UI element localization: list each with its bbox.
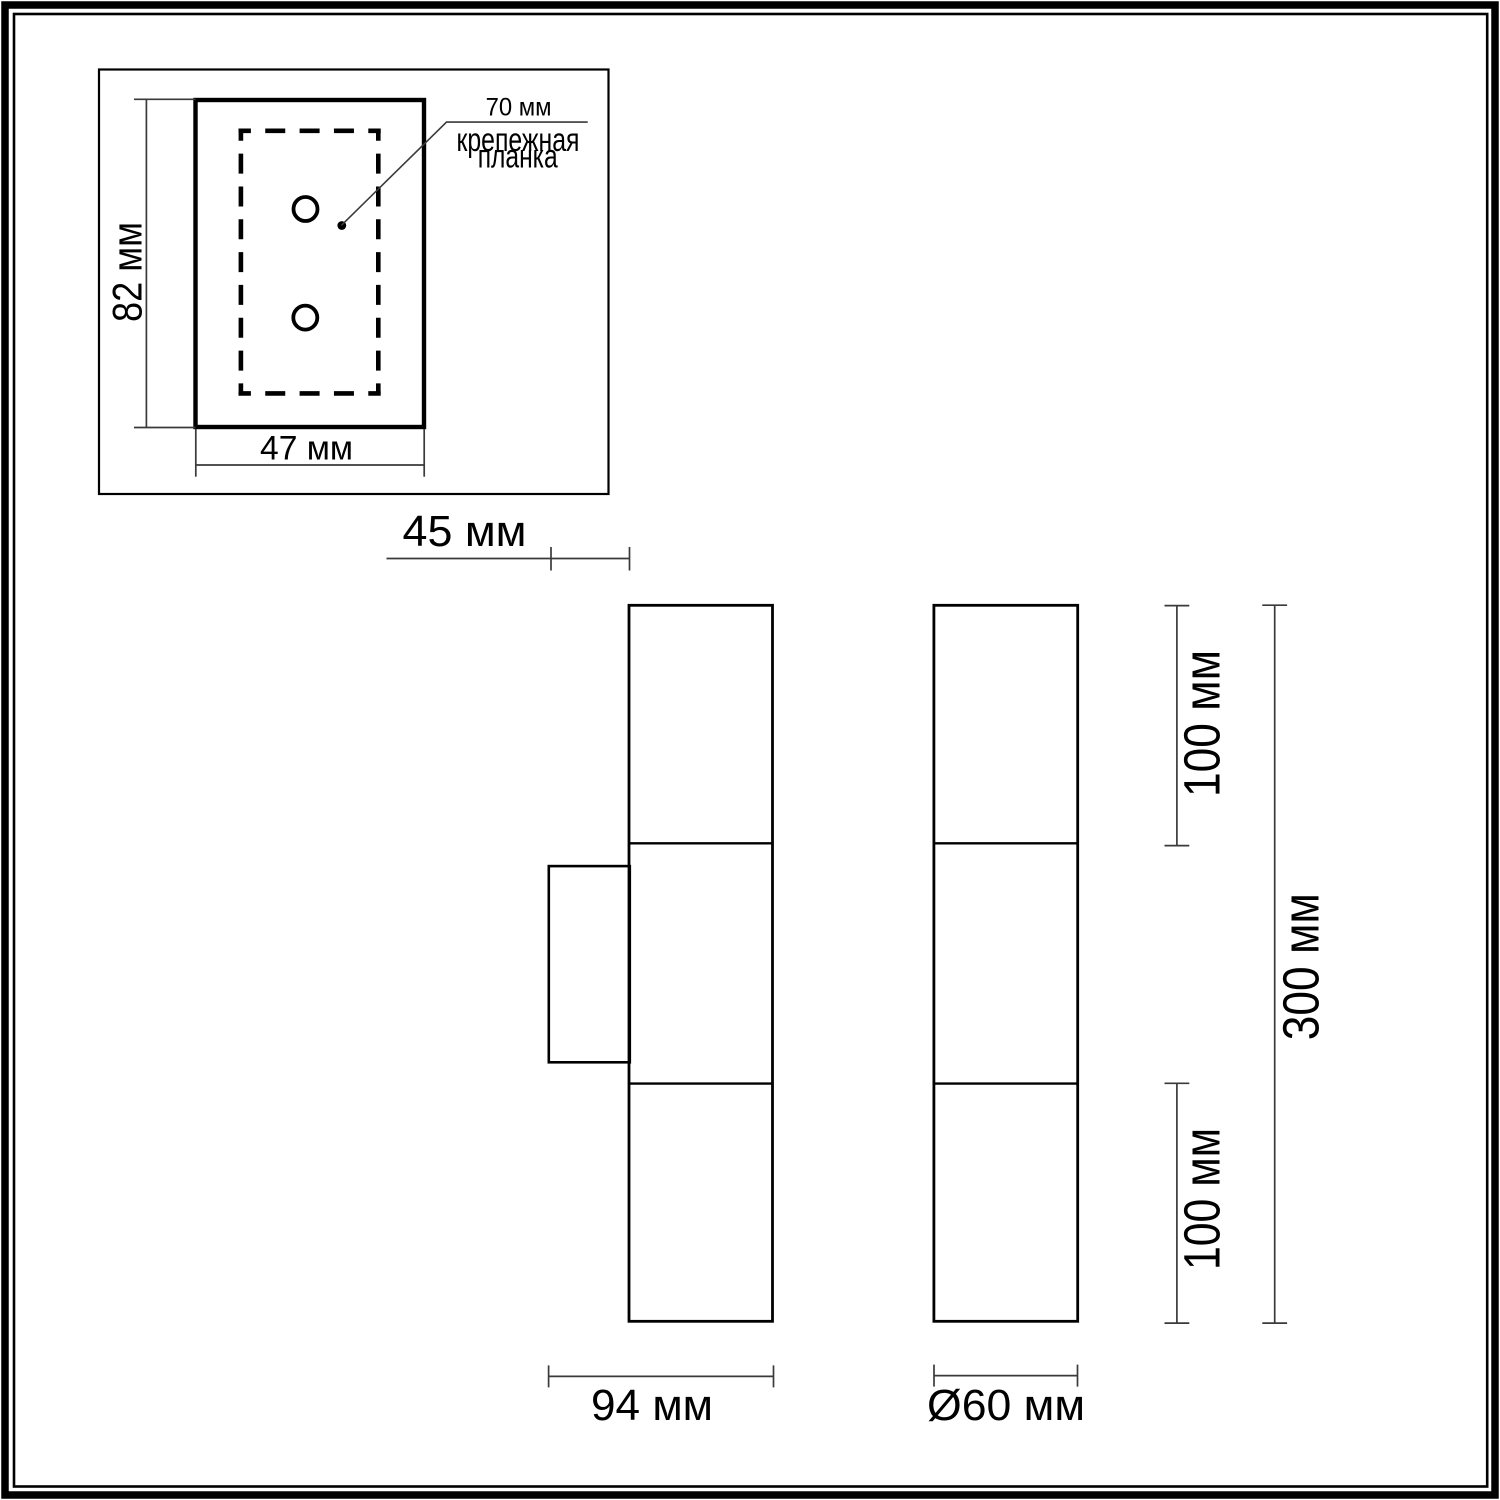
svg-text:300 мм: 300 мм (1272, 893, 1329, 1040)
svg-text:47 мм: 47 мм (260, 430, 353, 468)
svg-text:94 мм: 94 мм (591, 1381, 713, 1430)
svg-text:100 мм: 100 мм (1174, 650, 1231, 797)
svg-text:82 мм: 82 мм (104, 222, 151, 322)
svg-text:70 мм: 70 мм (486, 94, 552, 122)
svg-text:45 мм: 45 мм (403, 507, 527, 556)
svg-text:Ø60 мм: Ø60 мм (927, 1381, 1085, 1430)
svg-text:100 мм: 100 мм (1173, 1128, 1230, 1270)
svg-text:планка: планка (478, 138, 558, 175)
